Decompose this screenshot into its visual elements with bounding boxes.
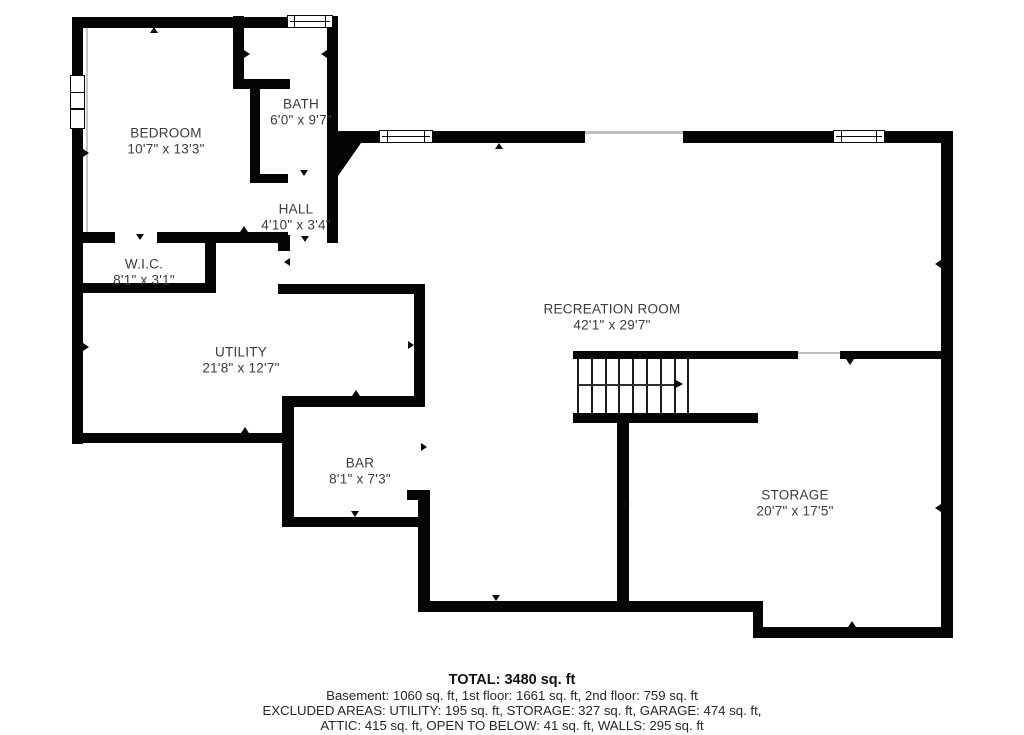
wall: [278, 284, 425, 294]
wall: [282, 396, 425, 407]
room-name: BEDROOM: [127, 126, 204, 142]
room-dimensions: 42'1" x 29'7": [543, 317, 680, 333]
measurement-tick: [244, 50, 250, 58]
wall: [233, 16, 244, 88]
wall: [414, 284, 425, 402]
measurement-tick: [83, 149, 89, 157]
floor-areas: Basement: 1060 sq. ft, 1st floor: 1661 s…: [0, 688, 1024, 703]
measurement-tick: [495, 143, 503, 149]
wall: [72, 232, 115, 243]
room-label-bedroom: BEDROOM 10'7" x 13'3": [127, 126, 204, 157]
window: [379, 130, 433, 143]
window: [287, 15, 333, 28]
room-label-bar: BAR 8'1" x 7'3": [329, 456, 391, 487]
room-label-hall: HALL 4'10" x 3'4": [261, 202, 331, 233]
measurement-tick: [408, 341, 414, 349]
measurement-tick: [935, 260, 941, 268]
opening-line: [585, 131, 683, 134]
wall: [233, 79, 290, 89]
wall: [617, 413, 629, 605]
wall-inner-line: [86, 28, 88, 232]
room-dimensions: 10'7" x 13'3": [127, 141, 204, 157]
wall: [250, 174, 288, 183]
measurement-tick: [300, 170, 308, 176]
excluded-areas-line1: EXCLUDED AREAS: UTILITY: 195 sq. ft, STO…: [0, 703, 1024, 718]
excluded-areas-line2: ATTIC: 415 sq. ft, OPEN TO BELOW: 41 sq.…: [0, 718, 1024, 733]
wall: [573, 351, 798, 359]
wall: [840, 351, 952, 359]
measurement-tick: [623, 500, 629, 508]
measurement-tick: [492, 595, 500, 601]
wall: [941, 131, 953, 638]
room-name: RECREATION ROOM: [543, 302, 680, 318]
wall: [573, 413, 758, 423]
wall: [338, 131, 585, 143]
measurement-tick: [846, 359, 854, 365]
room-name: HALL: [261, 202, 331, 218]
measurement-tick: [83, 343, 89, 351]
wall: [418, 601, 763, 612]
room-name: W.I.C.: [113, 257, 175, 273]
room-dimensions: 8'1" x 7'3": [329, 471, 391, 487]
measurement-tick: [240, 226, 248, 232]
room-dimensions: 4'10" x 3'4": [261, 217, 331, 233]
room-label-utility: UTILITY 21'8" x 12'7": [202, 345, 279, 376]
wall: [278, 235, 290, 251]
room-dimensions: 8'1" x 3'1": [113, 272, 175, 288]
room-dimensions: 21'8" x 12'7": [202, 360, 279, 376]
wall: [72, 433, 294, 443]
wall: [157, 232, 288, 243]
wall: [282, 517, 418, 527]
wall: [683, 131, 835, 143]
stairs-direction-arrow: [578, 384, 676, 386]
room-label-bath: BATH 6'0" x 9'7": [270, 97, 332, 128]
staircase: [577, 359, 688, 413]
measurement-tick: [848, 621, 856, 627]
measurement-tick: [241, 427, 249, 433]
room-name: BAR: [329, 456, 391, 472]
wall: [885, 131, 953, 143]
room-label-wic: W.I.C. 8'1" x 3'1": [113, 257, 175, 288]
wall: [418, 490, 430, 612]
room-name: BATH: [270, 97, 332, 113]
angled-wall: [338, 143, 361, 176]
room-label-storage: STORAGE 20'7" x 17'5": [756, 488, 833, 519]
measurement-tick: [284, 258, 290, 266]
room-dimensions: 6'0" x 9'7": [270, 112, 332, 128]
room-name: STORAGE: [756, 488, 833, 504]
opening-line: [798, 352, 840, 354]
measurement-tick: [352, 390, 360, 396]
stairs-arrowhead-icon: [674, 379, 683, 389]
wall: [753, 627, 952, 638]
measurement-tick: [136, 234, 144, 240]
total-area: TOTAL: 3480 sq. ft: [0, 672, 1024, 688]
measurement-tick: [301, 236, 309, 242]
measurement-tick: [935, 504, 941, 512]
measurement-tick: [150, 27, 158, 33]
wall: [282, 396, 294, 527]
wall: [250, 86, 260, 183]
area-summary: TOTAL: 3480 sq. ft Basement: 1060 sq. ft…: [0, 672, 1024, 733]
measurement-tick: [321, 50, 327, 58]
measurement-tick: [421, 443, 427, 451]
window: [70, 75, 85, 129]
measurement-tick: [351, 511, 359, 517]
window: [833, 130, 885, 143]
room-label-recreation-room: RECREATION ROOM 42'1" x 29'7": [543, 302, 680, 333]
floor-plan: BEDROOM 10'7" x 13'3" BATH 6'0" x 9'7" H…: [0, 0, 1024, 735]
room-dimensions: 20'7" x 17'5": [756, 503, 833, 519]
room-name: UTILITY: [202, 345, 279, 361]
